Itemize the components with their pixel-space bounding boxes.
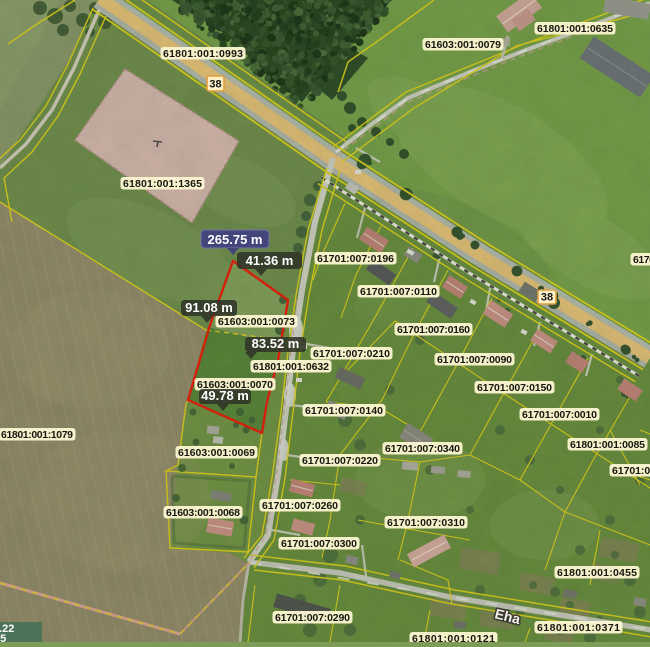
svg-text:38: 38 bbox=[541, 292, 553, 304]
svg-text:35: 35 bbox=[0, 633, 6, 642]
svg-text:61603:001:0069: 61603:001:0069 bbox=[178, 447, 255, 459]
svg-text:61801:001:0085: 61801:001:0085 bbox=[570, 439, 645, 451]
svg-text:61801:001:0371: 61801:001:0371 bbox=[537, 622, 620, 634]
svg-text:38: 38 bbox=[209, 79, 221, 91]
svg-text:6170: 6170 bbox=[633, 254, 650, 266]
svg-text:61801:001:1365: 61801:001:1365 bbox=[123, 178, 202, 190]
svg-text:61701:007:0310: 61701:007:0310 bbox=[387, 517, 465, 529]
svg-text:61701:007:0300: 61701:007:0300 bbox=[281, 538, 357, 550]
svg-text:61701:007:0196: 61701:007:0196 bbox=[317, 253, 394, 265]
svg-text:61701:007:0110: 61701:007:0110 bbox=[360, 286, 437, 298]
svg-text:61701:00: 61701:00 bbox=[612, 465, 650, 477]
svg-text:61701:007:0160: 61701:007:0160 bbox=[397, 324, 470, 336]
svg-text:61701:007:0010: 61701:007:0010 bbox=[522, 409, 597, 421]
svg-text:61603:001:0068: 61603:001:0068 bbox=[166, 507, 240, 519]
svg-text:61701:007:0340: 61701:007:0340 bbox=[385, 443, 460, 455]
svg-text:61801:001:0635: 61801:001:0635 bbox=[537, 23, 613, 35]
svg-text:265.75 m: 265.75 m bbox=[208, 232, 263, 247]
svg-text:61603:001:0079: 61603:001:0079 bbox=[425, 39, 501, 51]
svg-text:61701:007:0150: 61701:007:0150 bbox=[477, 382, 552, 394]
svg-text:49.78 m: 49.78 m bbox=[201, 388, 249, 403]
svg-text:61801:001:0121: 61801:001:0121 bbox=[412, 633, 495, 642]
svg-text:61701:007:0140: 61701:007:0140 bbox=[305, 405, 383, 417]
svg-text:61801:001:0455: 61801:001:0455 bbox=[557, 567, 637, 579]
svg-text:61801:001:0632: 61801:001:0632 bbox=[253, 361, 329, 373]
svg-text:61701:007:0220: 61701:007:0220 bbox=[302, 455, 378, 467]
svg-text:61701:007:0210: 61701:007:0210 bbox=[313, 348, 390, 360]
svg-text:61701:007:0260: 61701:007:0260 bbox=[262, 500, 338, 512]
svg-text:61801:001:1079: 61801:001:1079 bbox=[1, 429, 73, 441]
svg-text:61801:001:0993: 61801:001:0993 bbox=[163, 48, 243, 60]
svg-text:91.08 m: 91.08 m bbox=[185, 300, 233, 315]
svg-text:61603:001:0073: 61603:001:0073 bbox=[218, 316, 295, 328]
svg-text:83.52 m: 83.52 m bbox=[252, 336, 300, 351]
svg-text:61701:007:0090: 61701:007:0090 bbox=[437, 354, 512, 366]
svg-text:41.36 m: 41.36 m bbox=[246, 253, 294, 268]
svg-text:61701:007:0290: 61701:007:0290 bbox=[275, 612, 350, 624]
